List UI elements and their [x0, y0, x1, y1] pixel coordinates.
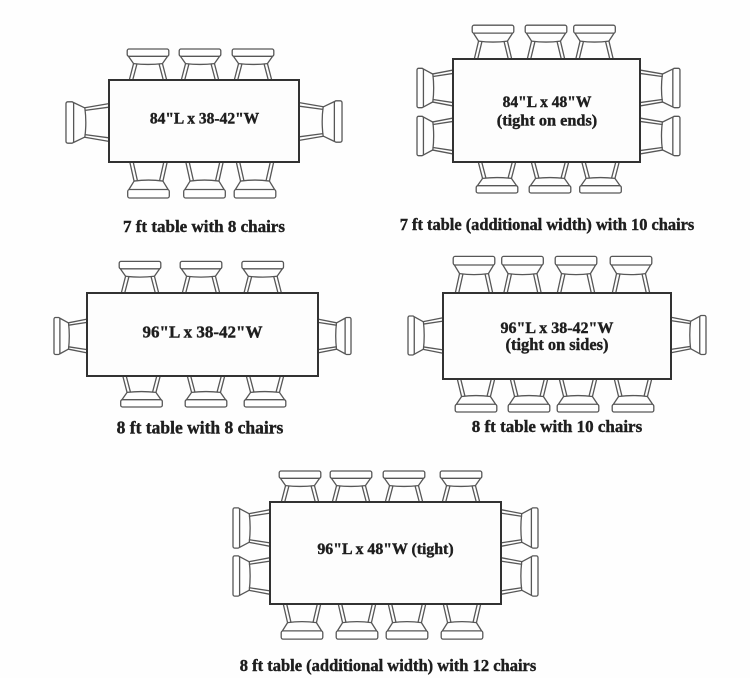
svg-text:8 ft table (additional width): 8 ft table (additional width) with 12 ch…	[240, 656, 537, 675]
svg-text:96"L x 48"W (tight): 96"L x 48"W (tight)	[317, 541, 453, 558]
svg-text:8 ft table with 10 chairs: 8 ft table with 10 chairs	[472, 417, 643, 436]
svg-text:8 ft table with 8 chairs: 8 ft table with 8 chairs	[117, 418, 284, 438]
svg-text:84"L x 48"W: 84"L x 48"W	[503, 94, 592, 111]
svg-text:96"L x 38-42"W: 96"L x 38-42"W	[143, 322, 263, 341]
svg-text:7 ft table with 8 chairs: 7 ft table with 8 chairs	[123, 217, 285, 236]
svg-text:(tight on sides): (tight on sides)	[506, 335, 609, 354]
svg-text:(tight on ends): (tight on ends)	[497, 111, 597, 130]
svg-text:84"L x 38-42"W: 84"L x 38-42"W	[150, 111, 260, 128]
svg-text:7 ft table (additional width): 7 ft table (additional width) with 10 ch…	[400, 215, 695, 234]
